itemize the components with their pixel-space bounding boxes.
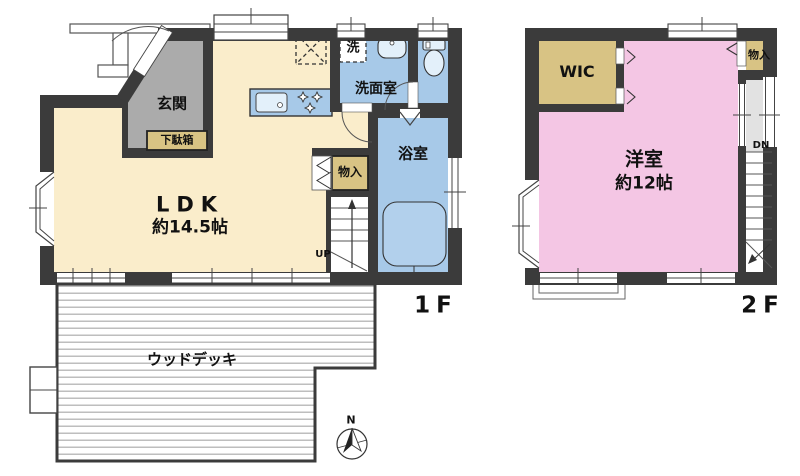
label-storage-1f: 物入 — [338, 166, 362, 178]
window-2f-top — [668, 17, 737, 38]
label-floor-1f: 1F — [414, 295, 458, 318]
floorplan-1f — [29, 8, 466, 461]
bay-window-1f — [29, 172, 54, 246]
window-ldk-top — [214, 8, 288, 40]
label-compass-north: N — [346, 415, 355, 426]
label-genkan: 玄関 — [157, 97, 187, 112]
bathtub-icon — [383, 202, 446, 277]
kitchen-counter — [250, 89, 332, 116]
floorplan-drawing — [0, 0, 800, 476]
window-washroom-top — [337, 17, 365, 38]
bifold-door-icon — [312, 156, 332, 190]
label-washroom: 洗面室 — [355, 82, 397, 96]
label-wood-deck: ウッドデッキ — [147, 353, 237, 368]
label-western-room: 洋室 — [625, 151, 663, 170]
label-shoe-cabinet: 下駄箱 — [161, 135, 194, 146]
label-storage-2f: 物入 — [748, 50, 770, 61]
label-washer: 洗 — [346, 42, 359, 55]
label-wic: WIC — [559, 64, 594, 80]
compass-icon — [337, 428, 367, 459]
kitchen-sink-icon — [256, 93, 287, 112]
deck-step — [30, 367, 57, 413]
label-ldk-name: LDK — [156, 195, 224, 216]
label-stairs-down: DN — [753, 141, 770, 151]
wood-deck — [30, 284, 375, 461]
toilet-icon — [423, 40, 445, 76]
label-bathroom: 浴室 — [398, 147, 428, 162]
floorplan-canvas: 玄関 下駄箱 LDK 約14.5帖 洗 洗面室 浴室 物入 UP 1F ウッドデ… — [0, 0, 800, 476]
bay-window-2f — [512, 180, 539, 268]
label-stairs-up: UP — [315, 250, 330, 260]
window-toilet-top — [418, 17, 448, 38]
label-western-area: 約12帖 — [615, 176, 673, 193]
label-ldk-area: 約14.5帖 — [152, 220, 228, 237]
label-floor-2f: 2F — [741, 295, 785, 318]
